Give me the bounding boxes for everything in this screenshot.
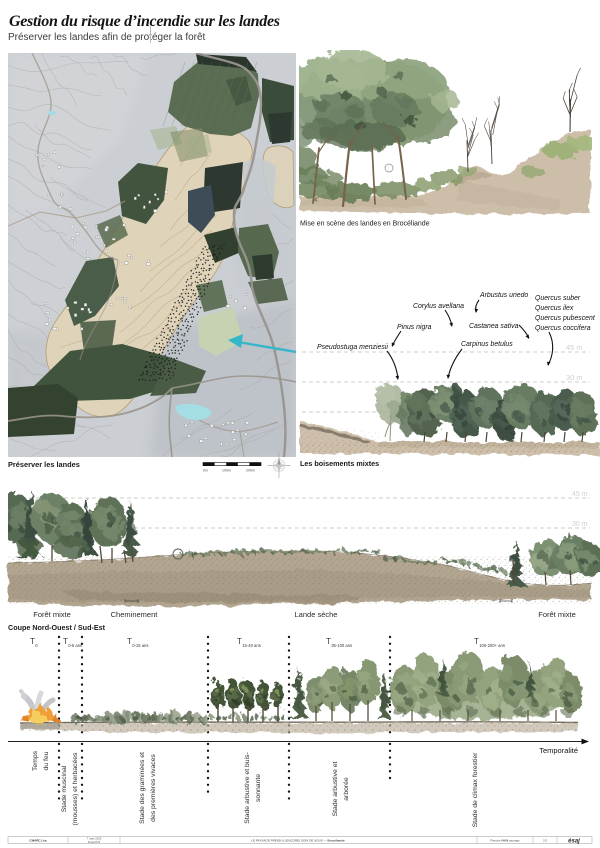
svg-text:100m: 100m <box>222 469 231 473</box>
svg-text:ésaj: ésaj <box>568 839 580 845</box>
svg-text:35-100 ans: 35-100 ans <box>331 643 352 648</box>
svg-text:Stade de climax forestier: Stade de climax forestier <box>472 752 479 828</box>
svg-text:Gestion du risque d’incendie s: Gestion du risque d’incendie sur les lan… <box>9 13 280 30</box>
svg-text:Préserver les landes: Préserver les landes <box>8 460 80 469</box>
svg-text:0m: 0m <box>203 469 208 473</box>
svg-text:Quercus ilex: Quercus ilex <box>535 305 574 312</box>
svg-text:200m: 200m <box>246 469 255 473</box>
svg-text:Les boisements mixtes: Les boisements mixtes <box>300 459 379 468</box>
svg-text:Temps: Temps <box>32 750 39 771</box>
svg-text:LE PAYSAGE PREND-IL (ENCORE) S: LE PAYSAGE PREND-IL (ENCORE) SOIN DE NOU… <box>251 839 345 843</box>
svg-text:Forêt mixte: Forêt mixte <box>538 610 576 619</box>
svg-text:Stade arbustive et buis-: Stade arbustive et buis- <box>244 752 251 823</box>
svg-text:45 m: 45 m <box>572 491 588 498</box>
svg-text:Pseudostuga menziesii: Pseudostuga menziesii <box>317 344 388 351</box>
svg-text:100-200+ ans: 100-200+ ans <box>479 643 505 648</box>
svg-text:30 m: 30 m <box>566 373 583 382</box>
svg-text:15-40 ans: 15-40 ans <box>242 643 261 648</box>
svg-text:Projet P23: Projet P23 <box>88 840 101 844</box>
svg-text:30 m: 30 m <box>572 521 588 528</box>
svg-text:0-5 ans: 0-5 ans <box>68 643 82 648</box>
svg-text:45 m: 45 m <box>566 343 583 352</box>
svg-text:Carpinus betulus: Carpinus betulus <box>461 341 513 348</box>
svg-text:arborée: arborée <box>343 777 350 801</box>
svg-text:Quercus pubescent: Quercus pubescent <box>535 315 596 322</box>
svg-text:Lande sèche: Lande sèche <box>295 610 338 619</box>
svg-text:Cheminement: Cheminement <box>111 610 159 619</box>
svg-text:Arbustus unedo: Arbustus unedo <box>479 292 528 299</box>
svg-text:Corylus avellana: Corylus avellana <box>413 303 464 310</box>
svg-text:(mousses) et herbacées: (mousses) et herbacées <box>72 752 79 826</box>
svg-text:Préserver les landes afin de p: Préserver les landes afin de protéger la… <box>8 32 206 43</box>
svg-text:Forêt mixte: Forêt mixte <box>33 610 71 619</box>
svg-text:des premières vivaces: des premières vivaces <box>150 754 157 822</box>
svg-text:Mise en scène des landes en Br: Mise en scène des landes en Brocéliande <box>300 221 430 228</box>
svg-text:CMARC Léa: CMARC Léa <box>29 839 46 843</box>
svg-text:0: 0 <box>35 643 38 648</box>
svg-text:Coupe Nord-Ouest / Sud-Est: Coupe Nord-Ouest / Sud-Est <box>8 623 106 632</box>
svg-text:Temporalité: Temporalité <box>539 746 578 755</box>
svg-text:Stade muscinal: Stade muscinal <box>61 765 68 812</box>
svg-text:Quercus coccifera: Quercus coccifera <box>535 325 591 332</box>
svg-text:Castanea sativa: Castanea sativa <box>469 323 519 330</box>
svg-text:Pinus nigra: Pinus nigra <box>397 324 432 331</box>
svg-text:2/3: 2/3 <box>543 839 547 843</box>
svg-text:Stade des graminées et: Stade des graminées et <box>139 752 146 824</box>
svg-text:sonnante: sonnante <box>255 774 262 802</box>
svg-text:Quercus suber: Quercus suber <box>535 295 581 302</box>
svg-text:Planche 04/06 paysage: Planche 04/06 paysage <box>490 839 520 843</box>
svg-text:0-15 ans: 0-15 ans <box>132 643 148 648</box>
svg-text:du feu: du feu <box>43 751 50 770</box>
svg-text:Stade arbustive et: Stade arbustive et <box>332 762 339 817</box>
